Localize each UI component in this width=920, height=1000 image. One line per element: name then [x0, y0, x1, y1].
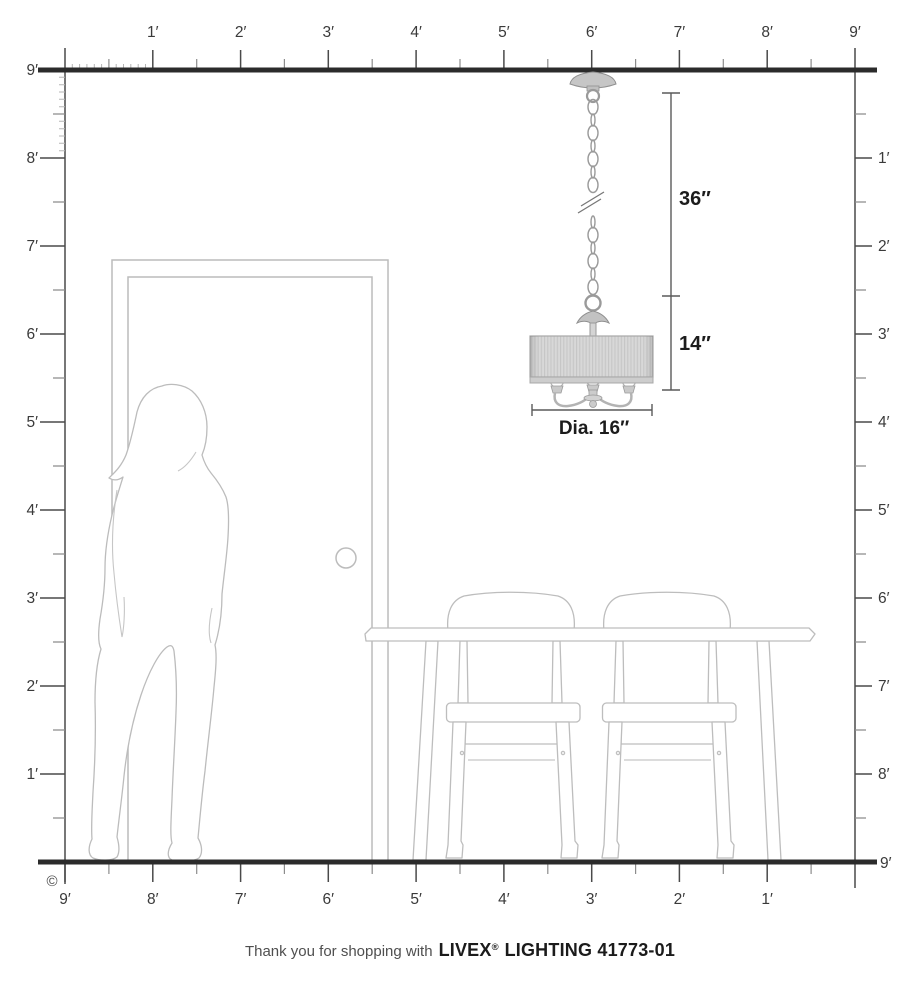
- chair-back-post: [458, 641, 468, 703]
- ruler-label: 5′: [26, 414, 38, 431]
- arm-left: [555, 393, 588, 406]
- bottom-finial: [590, 401, 597, 408]
- footer-tagline: Thank you for shopping withLIVEX®LIGHTIN…: [0, 940, 920, 961]
- left-ruler-labels: 9′ 8′ 7′ 6′ 5′ 4′ 3′ 2′ 1′: [26, 62, 38, 783]
- ruler-label: 1′: [761, 891, 773, 908]
- ruler-label: 5′: [498, 24, 510, 41]
- chair-seat: [447, 703, 581, 722]
- table-leg: [757, 641, 781, 860]
- ruler-label: 4′: [26, 502, 38, 519]
- footer-prefix: Thank you for shopping with: [245, 943, 433, 960]
- right-ruler-foot-ticks: [855, 158, 872, 862]
- bottom-ruler-labels: 9′ 8′ 7′ 6′ 5′ 4′ 3′ 2′ 1′: [59, 891, 773, 908]
- ruler-label: 8′: [26, 150, 38, 167]
- candle-cup: [551, 386, 563, 393]
- ruler-label: 3′: [323, 24, 335, 41]
- ruler-label: 7′: [674, 24, 686, 41]
- door-knob: [336, 548, 356, 568]
- ruler-label: 3′: [586, 891, 598, 908]
- chain-break-mark: [578, 192, 604, 213]
- room-scale-diagram: 1′ 2′ 3′ 4′ 5′ 6′ 7′ 8′ 9′ 9′ 8′ 7′ 6′ 5…: [0, 0, 920, 930]
- diameter-label: Dia. 16″: [559, 418, 629, 439]
- ruler-label: 8′: [147, 891, 159, 908]
- shade-bottom-band: [530, 377, 653, 383]
- ruler-label: 9′: [59, 891, 71, 908]
- ruler-label: 4′: [878, 414, 890, 431]
- chain-length-label: 36″: [679, 188, 711, 210]
- fixture-loop-ring: [586, 296, 601, 311]
- ruler-label: 6′: [586, 24, 598, 41]
- ruler-label: 1′: [26, 766, 38, 783]
- table-leg: [413, 641, 438, 860]
- ruler-label: 7′: [235, 891, 247, 908]
- ruler-label: 2′: [878, 238, 890, 255]
- ruler-label: 5′: [878, 502, 890, 519]
- ruler-label: 2′: [26, 678, 38, 695]
- ruler-label: 1′: [147, 24, 159, 41]
- pendant-light-fixture: [530, 72, 653, 408]
- ruler-label: 4′: [410, 24, 422, 41]
- right-ruler-labels: 1′ 2′ 3′ 4′ 5′ 6′ 7′ 8′ 9′: [878, 150, 892, 872]
- product-scale-diagram-page: 1′ 2′ 3′ 4′ 5′ 6′ 7′ 8′ 9′ 9′ 8′ 7′ 6′ 5…: [0, 0, 920, 1000]
- candle-cup: [623, 386, 635, 393]
- ruler-label: 7′: [878, 678, 890, 695]
- ruler-label: 9′: [880, 855, 892, 872]
- ruler-label: 8′: [761, 24, 773, 41]
- right-ruler-half-ticks: [855, 114, 866, 818]
- dining-table: [365, 628, 815, 860]
- model-number: LIGHTING 41773-01: [505, 940, 675, 960]
- ruler-label: 3′: [26, 590, 38, 607]
- ceiling-canopy: [570, 72, 616, 88]
- stem-rod: [590, 323, 596, 337]
- ruler-label: 6′: [323, 891, 335, 908]
- ruler-label: 9′: [849, 24, 861, 41]
- table-top: [365, 628, 815, 641]
- bottom-ruler-foot-ticks: [65, 864, 767, 882]
- ruler-label: 7′: [26, 238, 38, 255]
- chair-apron: [465, 722, 558, 744]
- ruler-label: 5′: [410, 891, 422, 908]
- drum-shade: [530, 336, 653, 383]
- brand-name: LIVEX: [439, 940, 492, 960]
- ruler-label: 2′: [674, 891, 686, 908]
- left-ruler-half-ticks: [53, 114, 65, 818]
- registered-trademark: ®: [492, 942, 499, 953]
- ruler-label: 8′: [878, 766, 890, 783]
- ruler-label: 3′: [878, 326, 890, 343]
- arm-right: [598, 393, 631, 406]
- copyright-mark: ©: [46, 873, 57, 890]
- chair-leg: [446, 722, 466, 858]
- chair-backrest: [448, 592, 575, 631]
- human-silhouette: [89, 384, 228, 861]
- ruler-label: 9′: [26, 62, 38, 79]
- ruler-label: 4′: [498, 891, 510, 908]
- fixture-height-label: 14″: [679, 333, 711, 355]
- top-ruler-labels: 1′ 2′ 3′ 4′ 5′ 6′ 7′ 8′ 9′: [147, 24, 861, 41]
- bottom-ruler-half-ticks: [109, 864, 811, 874]
- ruler-label: 1′: [878, 150, 890, 167]
- chair-back-post: [552, 641, 562, 703]
- ruler-label: 6′: [878, 590, 890, 607]
- ruler-label: 6′: [26, 326, 38, 343]
- shade-shading: [530, 336, 653, 377]
- chair-leg: [556, 722, 578, 858]
- ruler-label: 2′: [235, 24, 247, 41]
- human-outline: [89, 384, 228, 861]
